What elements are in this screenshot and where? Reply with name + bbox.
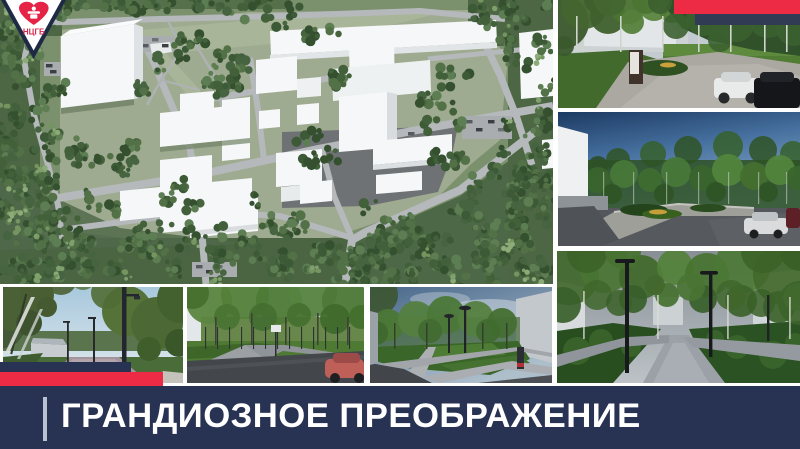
svg-text:НЦГБ: НЦГБ	[23, 28, 45, 37]
